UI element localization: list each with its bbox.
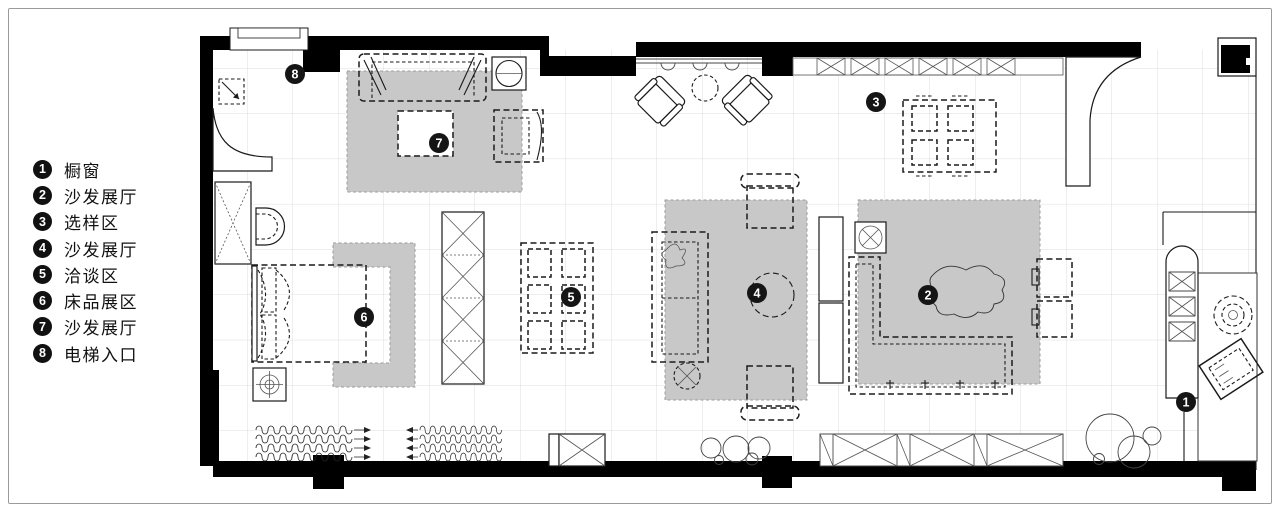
- floor-plan-page: 1 橱窗 2 沙发展厅 3 选样区 4 沙发展厅 5 洽谈区 6 床品展区 7 …: [0, 0, 1280, 512]
- marker-2-sofa-showroom: 2: [918, 285, 938, 305]
- marker-1-display-window: 1: [1176, 392, 1196, 412]
- svg-text:6: 6: [361, 311, 368, 325]
- shaft-x-box-left: [215, 182, 251, 264]
- side-table-area2: [855, 222, 886, 253]
- x-cabinet-tall: [442, 212, 484, 384]
- carpet-area4: [665, 200, 807, 400]
- marker-7-sofa-showroom: 7: [429, 133, 449, 153]
- marker-5-negotiation-area: 5: [561, 287, 581, 307]
- partition-middle: [819, 217, 843, 383]
- svg-text:4: 4: [754, 287, 761, 301]
- svg-text:8: 8: [292, 68, 299, 82]
- side-table-area7: [492, 57, 526, 90]
- shelf-row-top: [793, 58, 1063, 75]
- elevator-door-opening: [230, 28, 308, 50]
- floor-plan-svg: 1 2 3 4 5 6 7 8: [0, 0, 1280, 512]
- marker-4-sofa-showroom: 4: [747, 283, 767, 303]
- wall-pier-top-left: [303, 50, 340, 72]
- floor-outlet-symbol: [253, 368, 286, 401]
- svg-text:2: 2: [925, 289, 932, 303]
- wall-pier-top-middle: [762, 45, 793, 76]
- x-cabinet-row-bottom: [820, 434, 1063, 466]
- marker-6-bedding-area: 6: [354, 307, 374, 327]
- marker-3-sample-area: 3: [866, 92, 886, 112]
- svg-text:5: 5: [568, 291, 575, 305]
- svg-text:7: 7: [436, 137, 443, 151]
- x-cabinet-bottom-single: [549, 434, 605, 466]
- corner-column-top-right: [1218, 38, 1256, 76]
- svg-text:1: 1: [1183, 396, 1190, 410]
- marker-8-elevator-entry: 8: [285, 64, 305, 84]
- svg-text:3: 3: [873, 96, 880, 110]
- column-bottom-middle: [762, 456, 792, 488]
